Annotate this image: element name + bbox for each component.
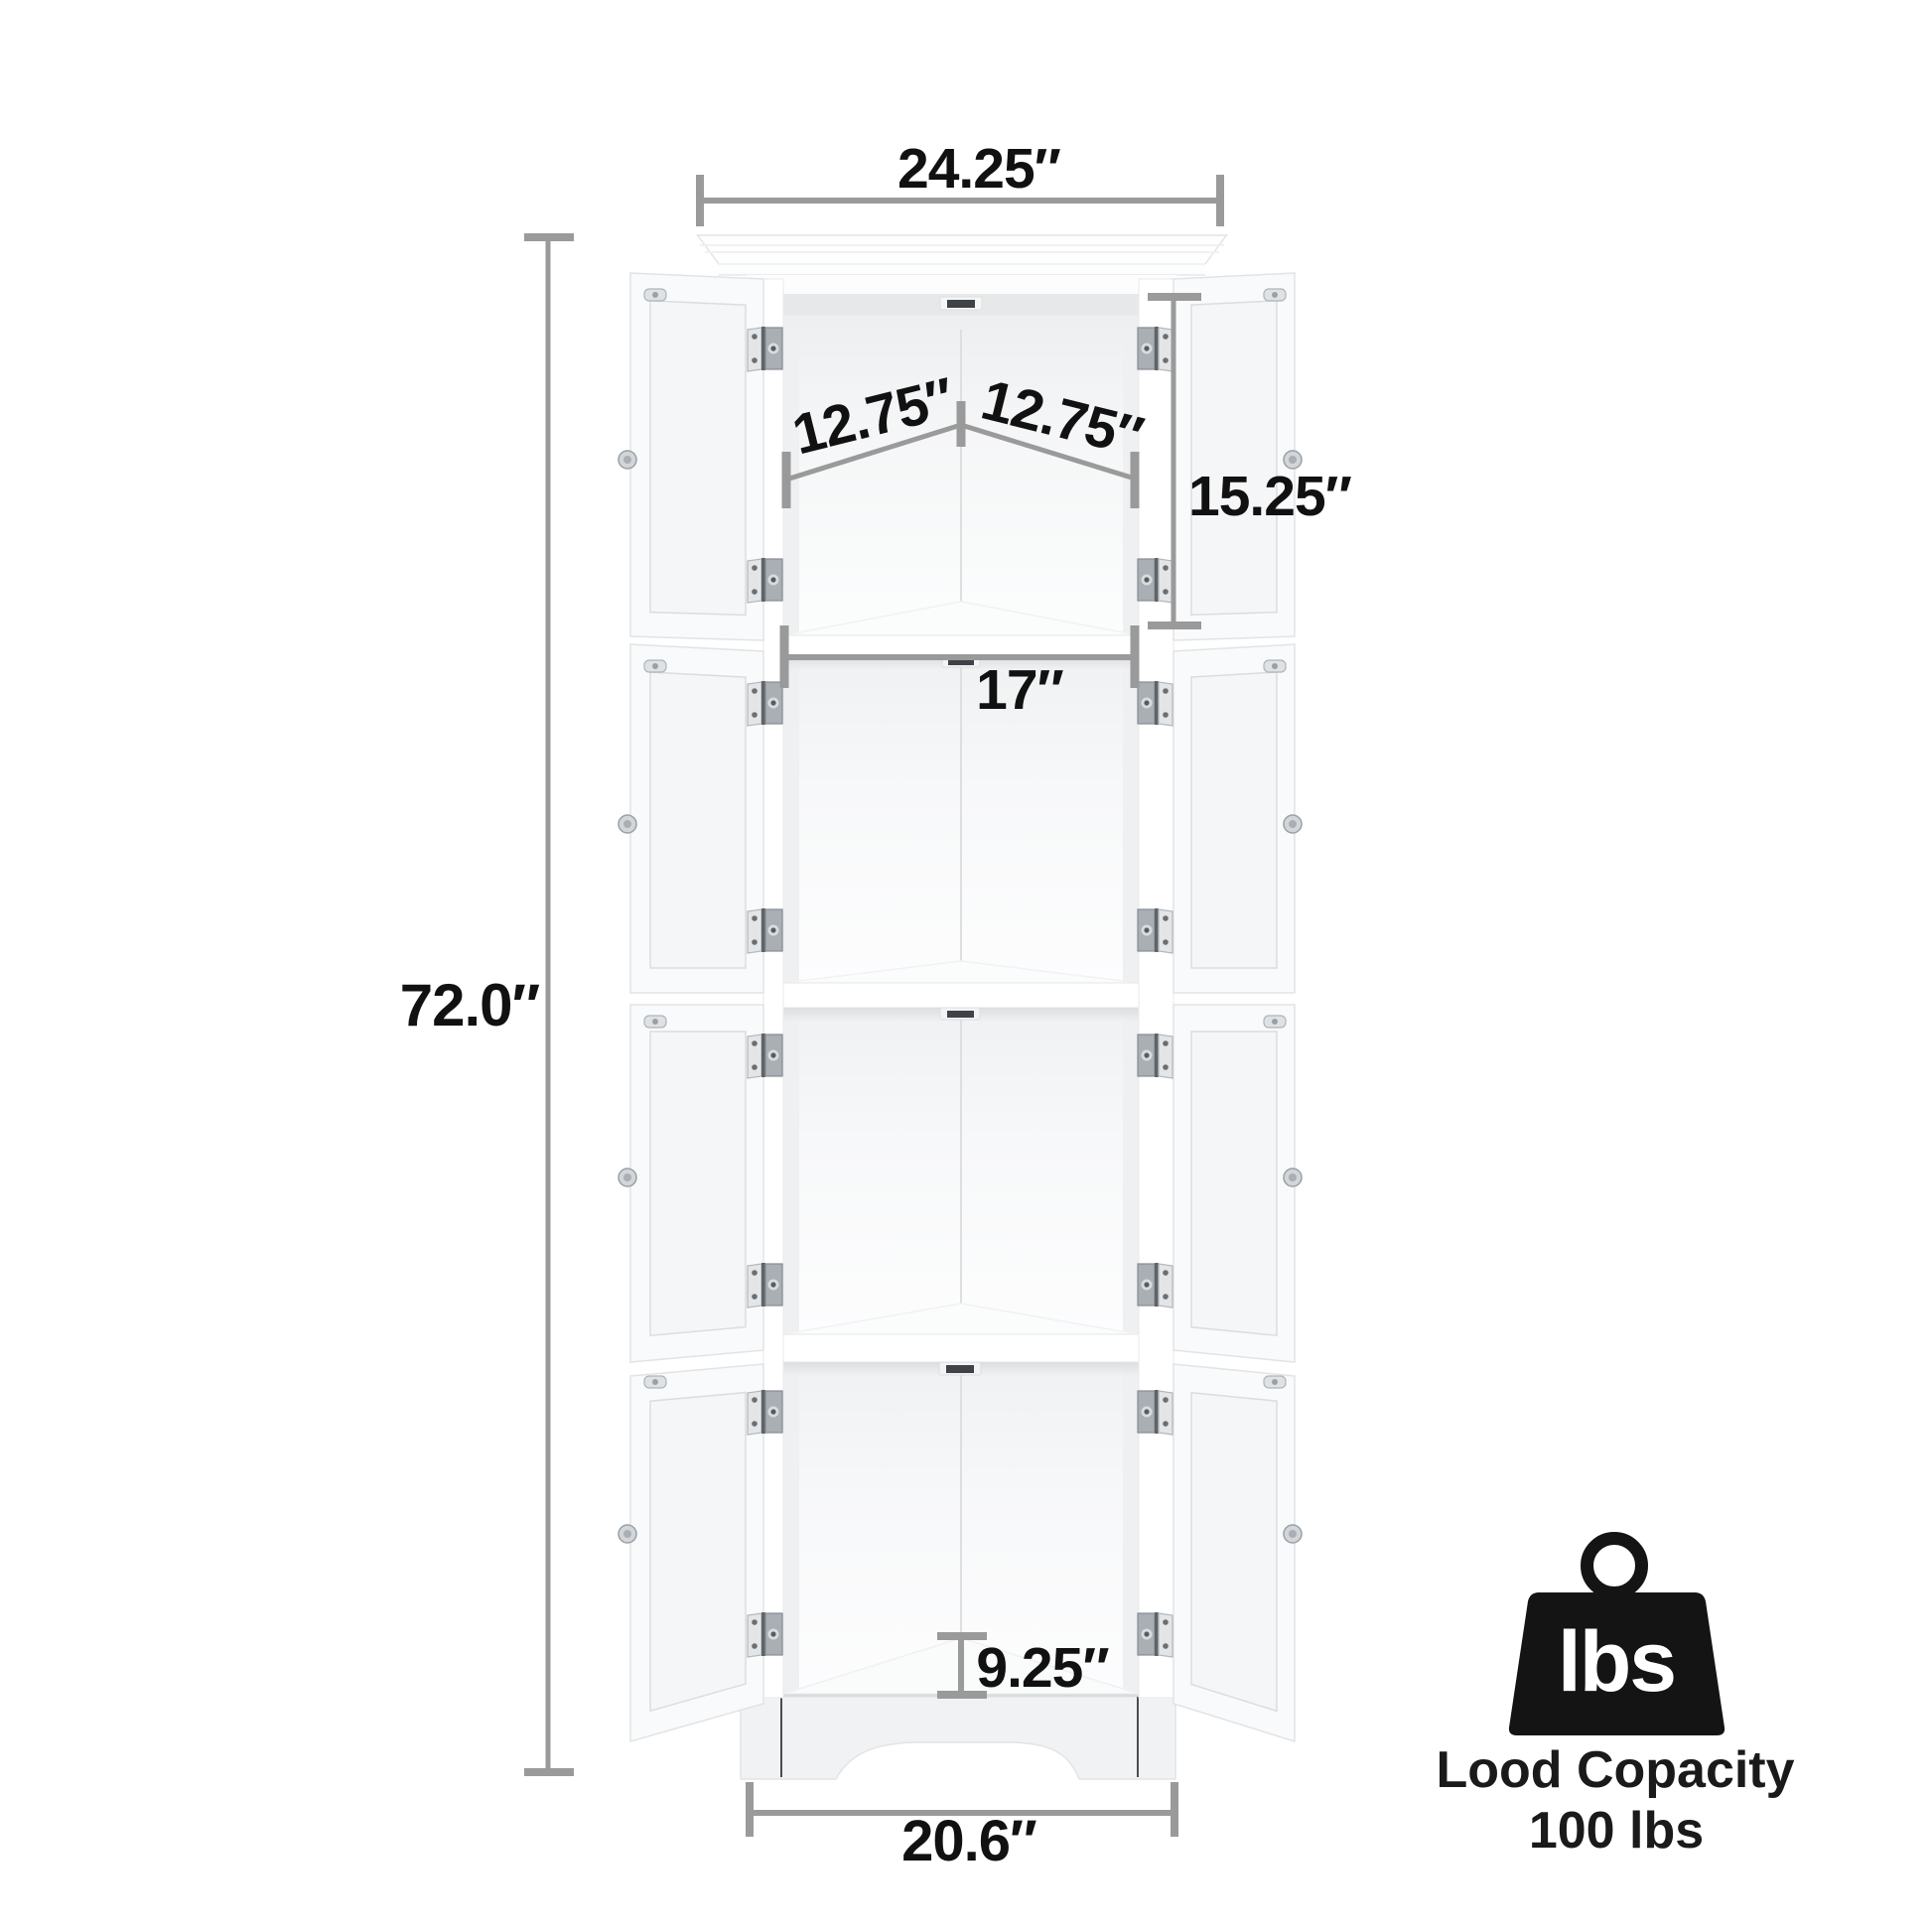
svg-text:9.25″: 9.25″ [976, 1636, 1109, 1700]
svg-text:20.6″: 20.6″ [901, 1809, 1036, 1873]
svg-text:24.25″: 24.25″ [897, 137, 1061, 201]
svg-text:lbs: lbs [1558, 1614, 1675, 1710]
svg-text:17″: 17″ [976, 658, 1063, 722]
svg-text:Lood Copacity: Lood Copacity [1436, 1741, 1794, 1799]
svg-text:100 lbs: 100 lbs [1529, 1802, 1704, 1860]
svg-text:72.0″: 72.0″ [400, 972, 540, 1038]
svg-text:15.25″: 15.25″ [1188, 465, 1352, 528]
